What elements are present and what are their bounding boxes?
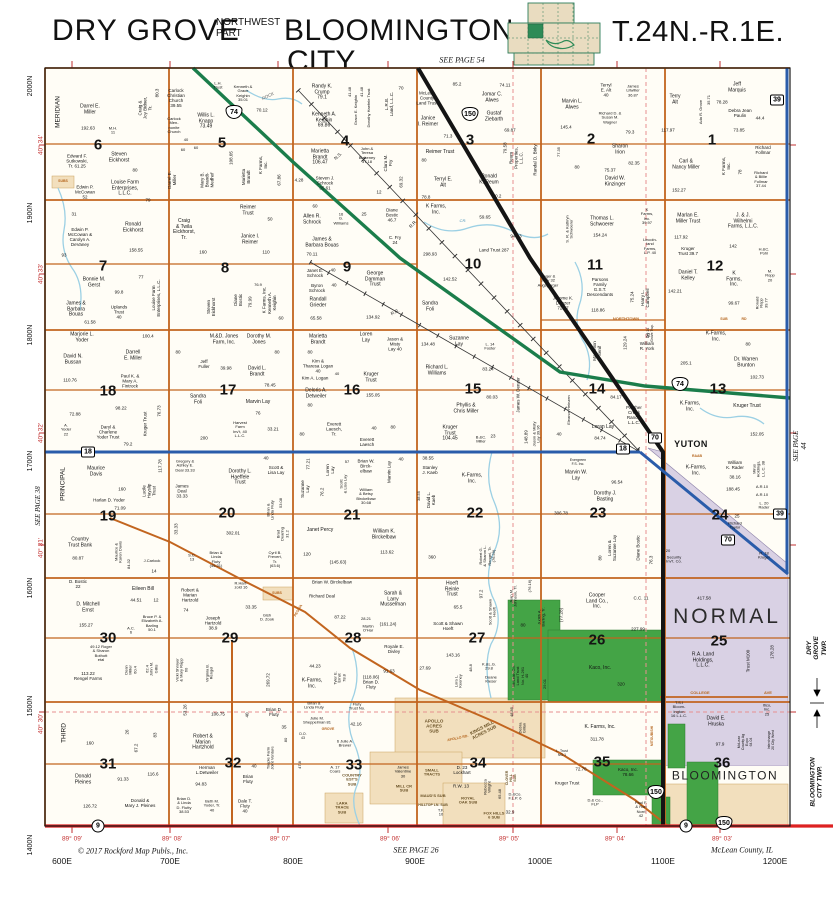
plat-map-page: DRY GROVE NORTHWEST PART BLOOMINGTON CIT… <box>0 0 835 900</box>
map-graphics <box>0 0 835 900</box>
township-boundary-arrows <box>810 678 824 728</box>
